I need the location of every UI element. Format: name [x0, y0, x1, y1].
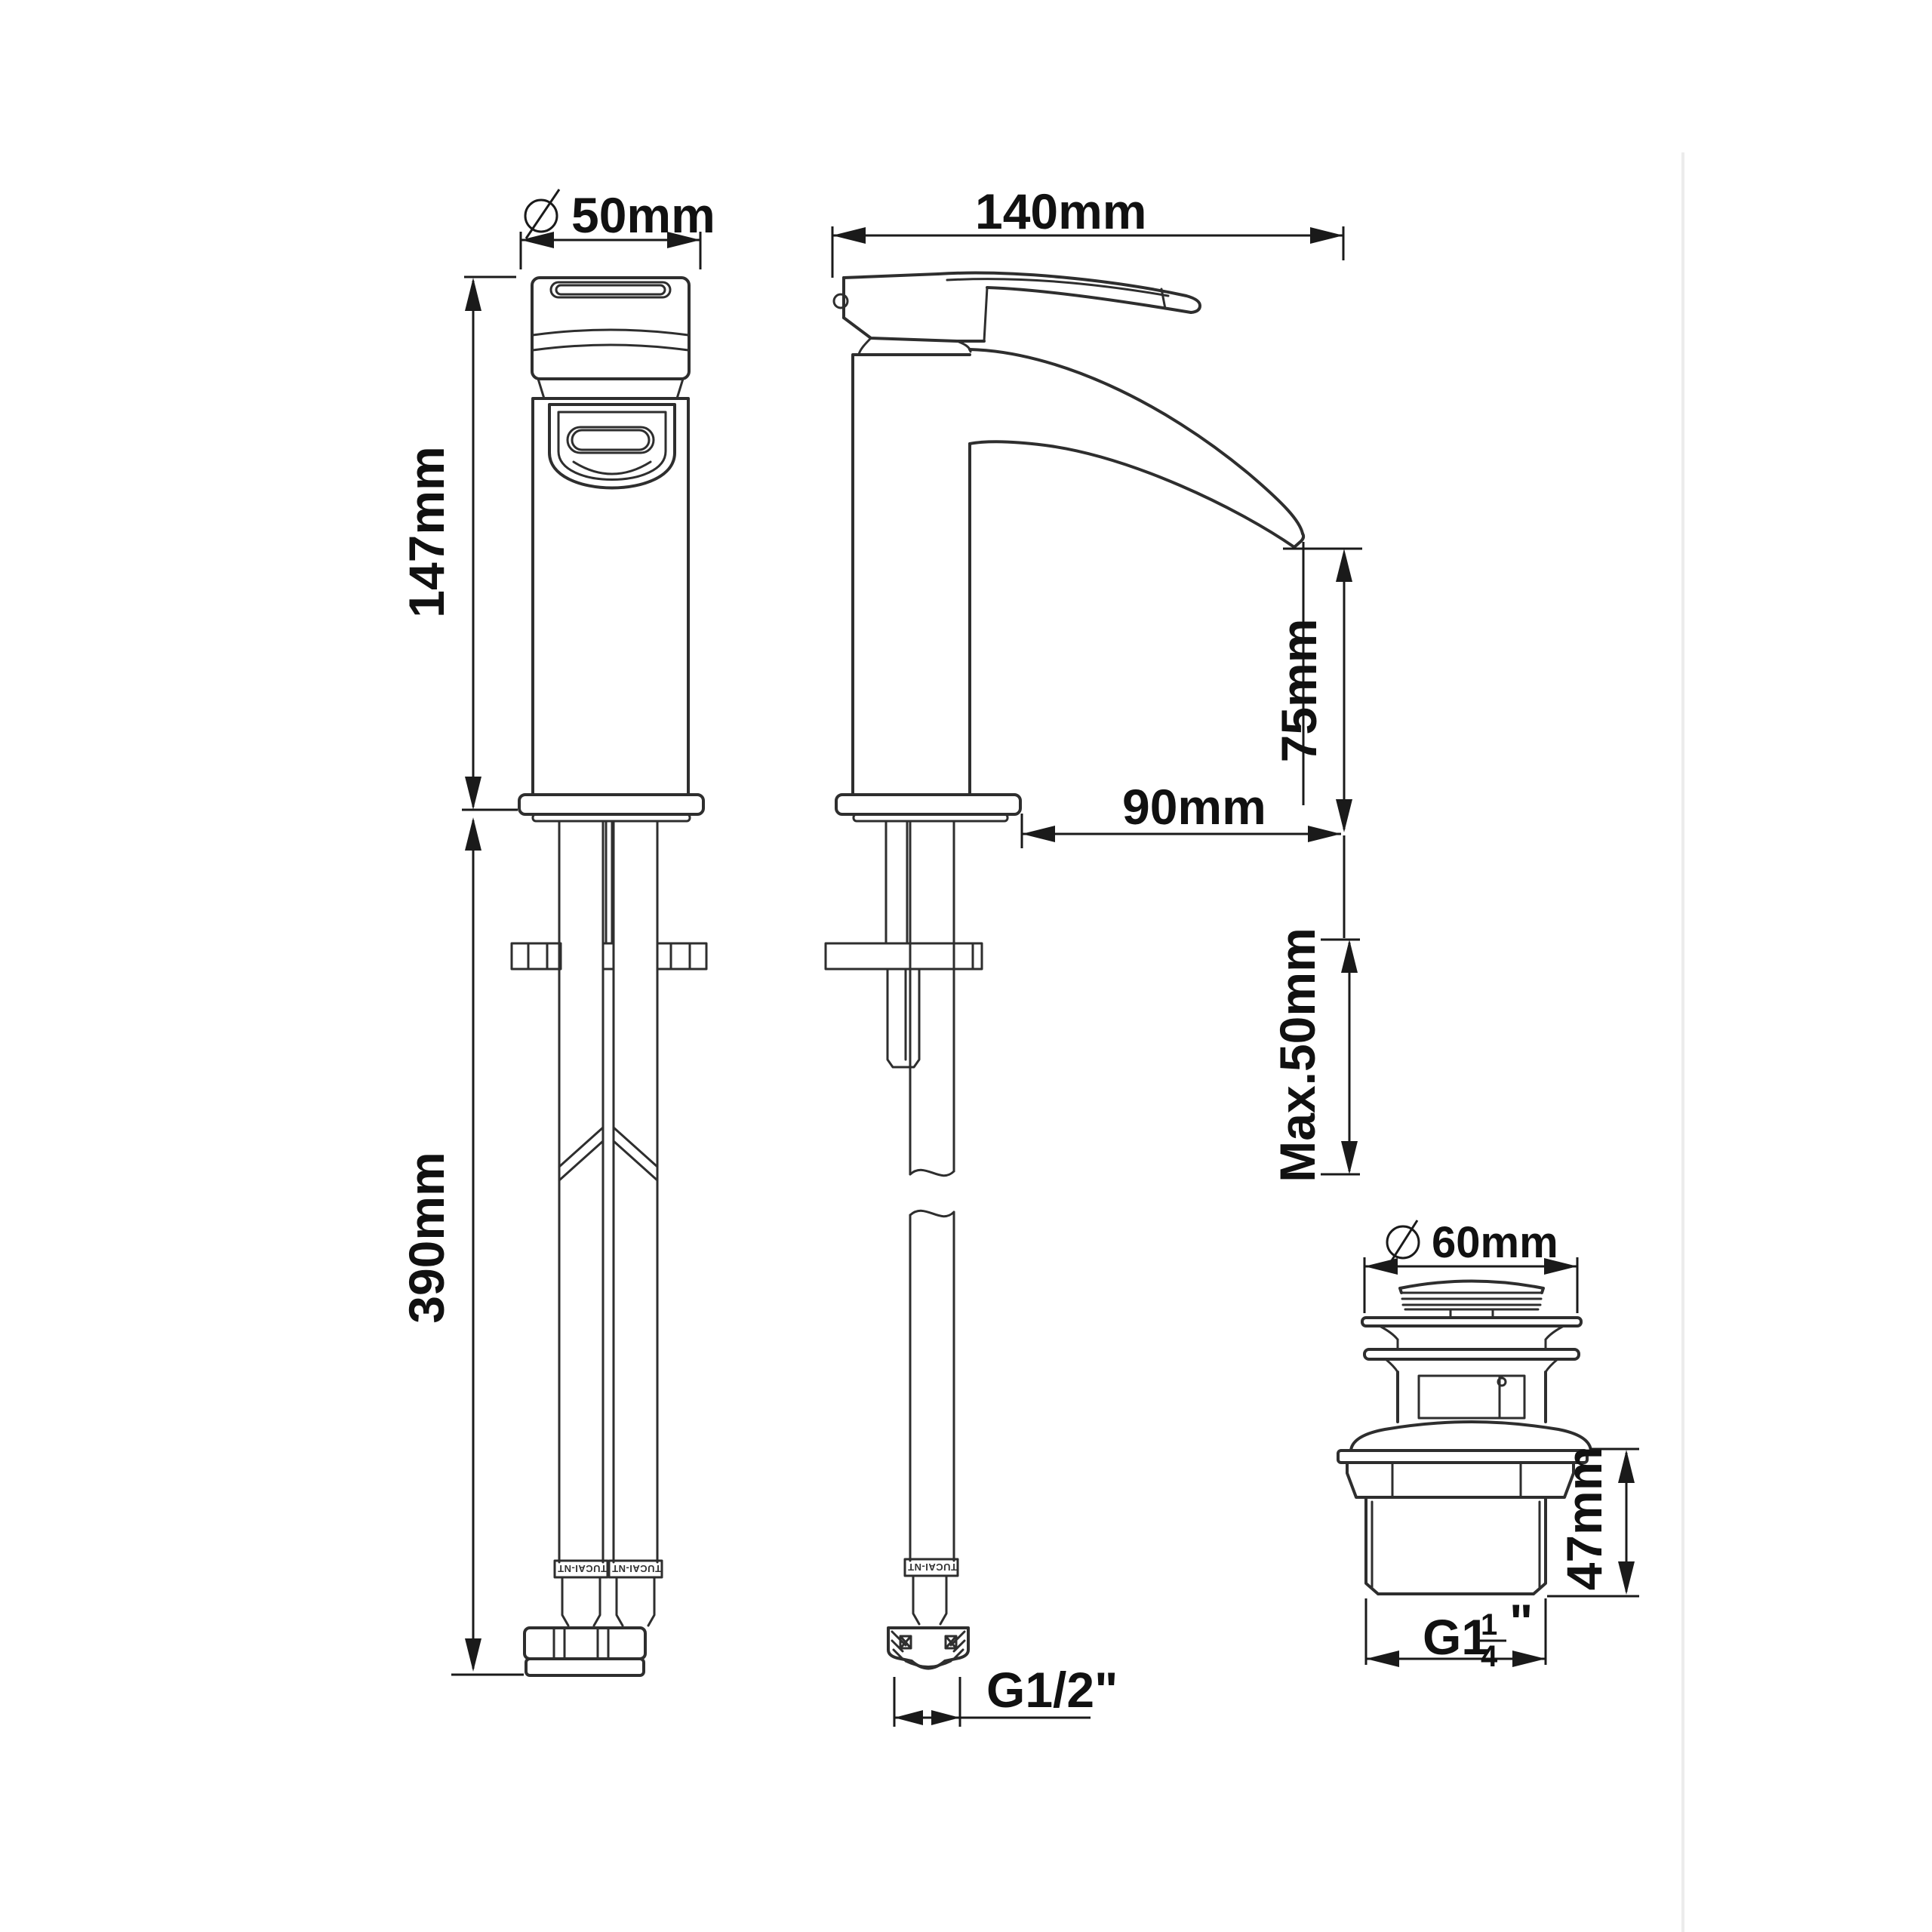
waste-top-flange: [1362, 1318, 1581, 1349]
waste-hex-nut: [1347, 1463, 1574, 1497]
waste-slotted-body: [1398, 1372, 1546, 1422]
dim-label-front-height: 147mm: [398, 446, 454, 618]
base-flange-side: [836, 795, 1020, 821]
dim-label-waste-thread-numerator: 1: [1481, 1608, 1497, 1641]
hose-brand-text: TUCAI-NT: [612, 1563, 661, 1574]
hose-brand-text: TUCAI-NT: [908, 1561, 957, 1573]
dim-side-max-deck: Max.50mm: [1269, 928, 1360, 1183]
dim-label-front-hose-length: 390mm: [398, 1152, 454, 1324]
faucet-dimension-diagram: TUCAI-NT TUCAI-NT 50mm 147mm 390mm: [0, 0, 1932, 1932]
faucet-body-front: [533, 398, 688, 795]
faucet-body-side: [853, 349, 1303, 795]
dim-waste-height: 47mm: [1547, 1447, 1639, 1596]
dim-front-height: 147mm: [398, 277, 518, 810]
dim-front-hose-length: 390mm: [398, 817, 524, 1675]
waste-thread-tail: [1366, 1497, 1546, 1594]
dim-label-front-diameter: 50mm: [571, 187, 715, 243]
dim-label-max-deck: Max.50mm: [1269, 928, 1325, 1183]
dim-label-waste-thread-denominator: 4: [1481, 1640, 1498, 1673]
base-flange-front: [519, 795, 703, 821]
dim-label-hose-thread: G1/2": [986, 1662, 1118, 1718]
waste-mid-flange: [1364, 1349, 1579, 1372]
mounting-clamp-front: [512, 943, 706, 969]
supply-hoses-front: [559, 821, 657, 1562]
dim-front-diameter: 50mm: [521, 187, 715, 269]
waste-cap: [1400, 1281, 1543, 1318]
hose-brand-text: TUCAI-NT: [558, 1563, 607, 1574]
page-edge-divider: [1681, 152, 1684, 1932]
cap-pin-icon: [834, 294, 848, 308]
dim-side-hose-thread: G1/2": [894, 1662, 1118, 1727]
side-view: TUCAI-NT 140mm 75mm 90mm: [826, 183, 1362, 1727]
dim-label-side-length: 140mm: [975, 183, 1147, 239]
dim-side-spout-height: 75mm: [1271, 549, 1362, 938]
overflow-pin-icon: [1498, 1378, 1506, 1386]
dim-label-waste-height: 47mm: [1556, 1447, 1612, 1591]
dim-side-spout-reach: 90mm: [1022, 779, 1341, 848]
dim-waste-thread: G1 1 4 ": [1366, 1594, 1546, 1673]
waste-lower-flange: [1338, 1422, 1591, 1463]
hose-connector-side: TUCAI-NT: [888, 1559, 968, 1669]
dim-label-waste-thread-main: G1: [1423, 1609, 1489, 1665]
faucet-neck-front: [538, 379, 683, 398]
dim-label-spout-reach: 90mm: [1122, 779, 1266, 835]
dim-label-spout-height: 75mm: [1271, 619, 1327, 763]
dim-label-waste-thread-quote: ": [1509, 1594, 1533, 1650]
faucet-cap-front: [532, 278, 689, 379]
front-view: TUCAI-NT TUCAI-NT 50mm 147mm 390mm: [398, 187, 715, 1675]
dim-side-length: 140mm: [832, 183, 1343, 278]
dim-label-waste-diameter: 60mm: [1432, 1218, 1558, 1267]
mounting-hardware-side: [826, 821, 982, 1561]
waste-view: 60mm 47mm G1 1 4 ": [1338, 1218, 1639, 1673]
technical-drawing-page: TUCAI-NT TUCAI-NT 50mm 147mm 390mm: [0, 0, 1932, 1932]
faucet-cap-side: [834, 278, 984, 355]
hose-connector-front: TUCAI-NT TUCAI-NT: [525, 1561, 662, 1675]
faucet-handle-side: [844, 273, 1200, 341]
